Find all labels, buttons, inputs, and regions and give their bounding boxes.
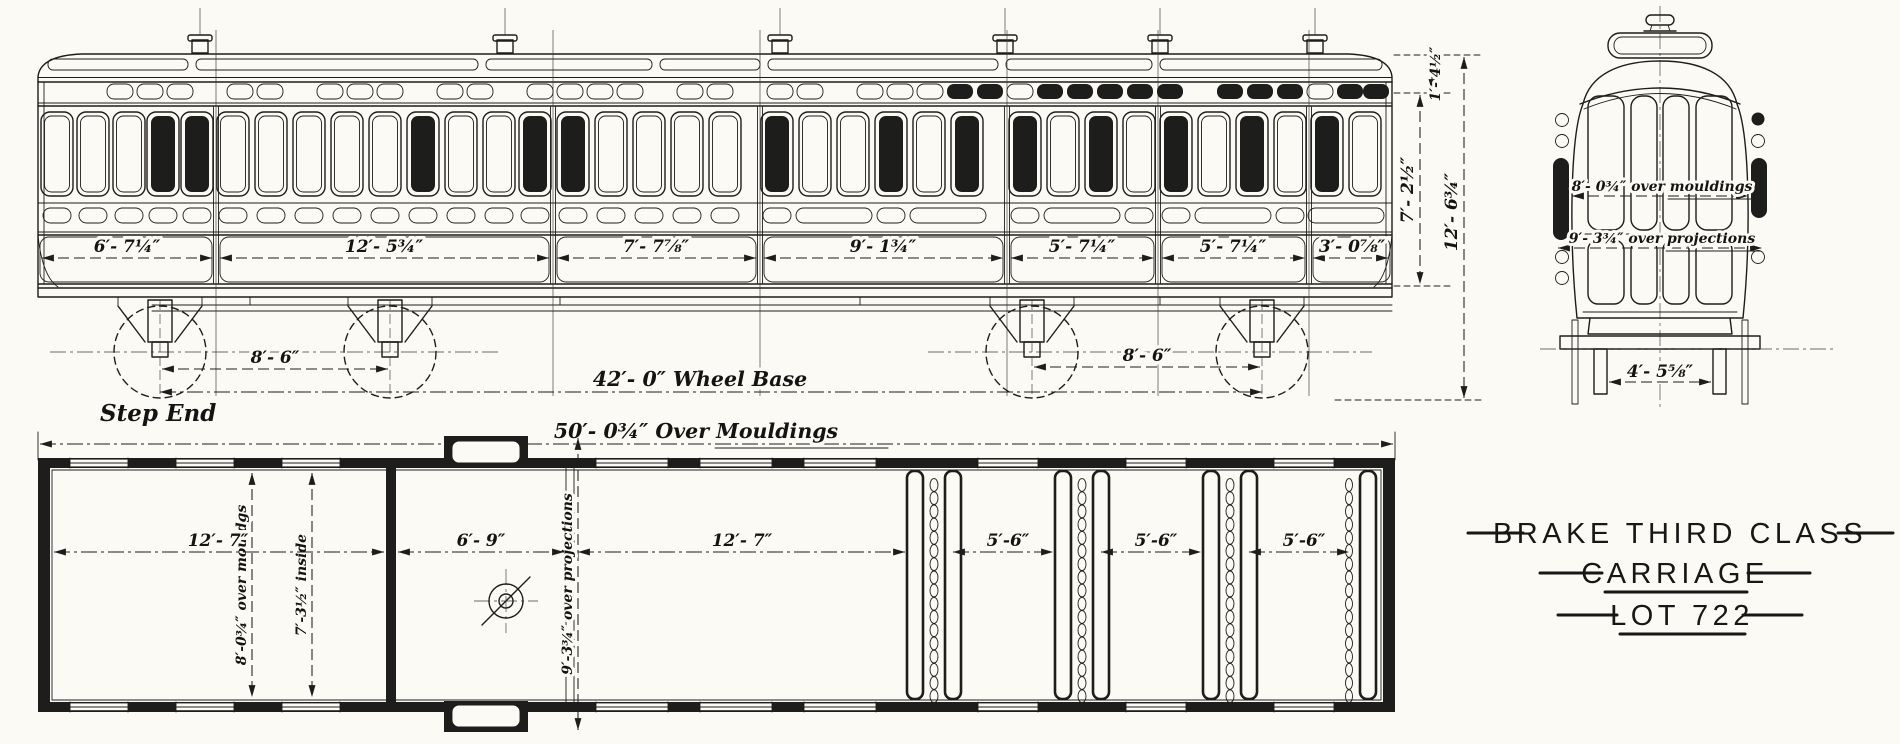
cornice-vent [257, 84, 283, 99]
partition-hatch [930, 545, 938, 558]
waist-oval-vent [295, 208, 323, 223]
partition-hatch [930, 611, 938, 624]
cornice-vent [587, 84, 613, 99]
roof-slat [768, 59, 998, 70]
cornice-vent [557, 84, 583, 99]
partition-hatch [1346, 571, 1353, 584]
cornice-vent [227, 84, 253, 99]
partition-hatch [1078, 597, 1086, 610]
cornice-vent [887, 84, 913, 99]
waist-oval-vent [219, 208, 247, 223]
plan-wall-left [38, 458, 50, 712]
waist-oval-vent [43, 208, 71, 223]
cornice-vent [1007, 84, 1033, 99]
roof-slat [1006, 59, 1152, 70]
side-window [1123, 112, 1155, 196]
end-door-light [1553, 158, 1569, 240]
end-panel-upper [1696, 96, 1732, 230]
window-frame-inner [599, 116, 624, 192]
grab-fitting [1752, 251, 1765, 264]
dim-body-height: 7′- 2½″ [1398, 156, 1418, 223]
seat-back [907, 471, 923, 699]
side-window [369, 112, 401, 196]
partition-hatch [930, 505, 938, 518]
side-elevation-view: 6′- 7¼″ 12′- 5¾″ 7′- 7⅞″ 9′- 1¾″ 5′- 7¼″… [38, 8, 1482, 427]
partition-hatch [1346, 558, 1353, 571]
roof-slat [660, 59, 760, 70]
end-panel-upper [1588, 96, 1624, 230]
waist-oval-vent [1276, 208, 1304, 223]
dim-panel-7: 3′- 0⅞″ [1319, 237, 1386, 257]
partition-hatch [1226, 611, 1234, 624]
window-frame-inner [675, 116, 700, 192]
cornice-vent [317, 84, 343, 99]
waist-long-vent [1308, 208, 1384, 223]
end-elevation-view: 8′- 0¾″ over mouldings 9′- 3¾″ over proj… [1540, 6, 1835, 408]
window-frame-inner [1202, 116, 1227, 192]
partition-hatch [1226, 492, 1234, 505]
side-window [837, 112, 869, 196]
partition-hatch [930, 663, 938, 676]
waist-oval-vent [1011, 208, 1039, 223]
grab-fitting [1752, 135, 1765, 148]
end-panel-lower [1588, 240, 1624, 304]
waist-oval-vent [521, 208, 549, 223]
plan-inner-face [52, 470, 1381, 700]
partition-hatch [1346, 505, 1353, 518]
cornice-vent [1363, 84, 1389, 99]
window-glass-dark [1089, 116, 1113, 192]
roof-ventilator [1307, 40, 1323, 53]
window-glass-dark [1315, 116, 1339, 192]
window-glass-dark [955, 116, 979, 192]
partition-hatch [1346, 545, 1353, 558]
roof-ventilator [497, 40, 513, 53]
partition-hatch [1346, 677, 1353, 690]
partition-hatch [1346, 518, 1353, 531]
dim-bogie-left: 8′- 6″ [250, 348, 300, 368]
partition-hatch [1078, 558, 1086, 571]
window-frame-inner [1353, 116, 1378, 192]
side-window [113, 112, 145, 196]
cornice-vent [677, 84, 703, 99]
partition-hatch [930, 690, 938, 703]
dim-panel-6: 5′- 7¼″ [1200, 237, 1267, 257]
side-window [633, 112, 665, 196]
cornice-vent [947, 84, 973, 99]
dim-panel-5: 5′- 7¼″ [1049, 237, 1116, 257]
partition-hatch [1346, 611, 1353, 624]
end-panel-lower [1696, 240, 1732, 304]
window-glass-dark [1164, 116, 1188, 192]
partition-hatch [1346, 584, 1353, 597]
roof-ventilator [772, 40, 788, 53]
side-window [799, 112, 831, 196]
partition-hatch [930, 571, 938, 584]
cornice-vent [857, 84, 883, 99]
side-window [1274, 112, 1306, 196]
window-frame-inner [1127, 116, 1152, 192]
cornice-vent [617, 84, 643, 99]
dim-rail-gauge: 4′- 5⅝″ [1627, 362, 1694, 382]
side-window [595, 112, 627, 196]
partition-hatch [930, 597, 938, 610]
window-glass-dark [1240, 116, 1264, 192]
window-frame-inner [841, 116, 866, 192]
window-glass-dark [151, 116, 175, 192]
partition-hatch [1078, 505, 1086, 518]
waist-oval-vent [711, 208, 739, 223]
partition-hatch [1346, 650, 1353, 663]
grab-fitting [1752, 113, 1765, 126]
end-panel-upper [1663, 96, 1689, 230]
window-glass-dark [561, 116, 585, 192]
cornice-vent [1157, 84, 1183, 99]
partition-hatch [1078, 518, 1086, 531]
waist-oval-vent [597, 208, 625, 223]
title-line-2: CARRIAGE [1581, 558, 1768, 590]
cornice-vent [1217, 84, 1243, 99]
side-window [913, 112, 945, 196]
grab-fitting [1556, 272, 1569, 285]
side-window [483, 112, 515, 196]
step-end-label: Step End [100, 400, 216, 427]
partition-hatch [1226, 597, 1234, 610]
dim-saloon-length: 12′- 7″ [712, 531, 773, 551]
window-frame-inner [297, 116, 322, 192]
partition-hatch [1346, 624, 1353, 637]
dim-over-mouldings: 8′- 0¾″ over mouldings [1572, 179, 1753, 195]
window-glass-dark [879, 116, 903, 192]
window-frame-inner [917, 116, 942, 192]
title-line-3: LOT 722 [1610, 600, 1754, 632]
partition-hatch [1346, 663, 1353, 676]
cornice-vent [1037, 84, 1063, 99]
partition-hatch [1078, 677, 1086, 690]
seat-back [1093, 471, 1109, 699]
partition-hatch [1226, 650, 1234, 663]
waist-long-vent [1195, 208, 1271, 223]
partition-hatch [1346, 690, 1353, 703]
partition-hatch [1226, 663, 1234, 676]
partition-hatch [930, 531, 938, 544]
waist-oval-vent [485, 208, 513, 223]
window-frame-inner [637, 116, 662, 192]
partition-hatch [1226, 518, 1234, 531]
plan-partition-luggage [386, 468, 396, 702]
partition-hatch [930, 479, 938, 492]
side-window [709, 112, 741, 196]
dim-panel-4: 9′- 1¾″ [850, 237, 917, 257]
leg-right [1713, 349, 1726, 394]
waist-oval-vent [1162, 208, 1190, 223]
waist-long-vent [910, 208, 986, 223]
cornice-vent [137, 84, 163, 99]
window-frame-inner [487, 116, 512, 192]
seat-back [1203, 471, 1219, 699]
side-window [255, 112, 287, 196]
window-frame-inner [713, 116, 738, 192]
cornice-vent [377, 84, 403, 99]
cornice-vent [1337, 84, 1363, 99]
window-frame-inner [81, 116, 106, 192]
cornice-vent [797, 84, 823, 99]
cornice-vent [347, 84, 373, 99]
partition-hatch [1226, 531, 1234, 544]
seat-back [1055, 471, 1071, 699]
end-panel-lower [1631, 240, 1657, 304]
waist-long-vent [1044, 208, 1120, 223]
cornice-vent [917, 84, 943, 99]
end-panel-upper [1631, 96, 1657, 230]
partition-hatch [1078, 637, 1086, 650]
partition-hatch [1346, 637, 1353, 650]
partition-hatch [1078, 571, 1086, 584]
roof-ventilator [997, 40, 1013, 53]
spring-hanger [118, 306, 145, 342]
partition-hatch [1078, 531, 1086, 544]
waist-oval-vent [149, 208, 177, 223]
grab-fitting [1556, 135, 1569, 148]
dim-compartment-2: 5′-6″ [1135, 531, 1178, 551]
partition-hatch [1226, 624, 1234, 637]
partition-hatch [1346, 597, 1353, 610]
side-window [1198, 112, 1230, 196]
waist-oval-vent [409, 208, 437, 223]
dim-total-height: 12′- 6¾″ [1442, 172, 1462, 251]
side-window [293, 112, 325, 196]
cornice-vent [1127, 84, 1153, 99]
side-window [1349, 112, 1381, 196]
cornice-vent [1097, 84, 1123, 99]
partition-hatch [1226, 479, 1234, 492]
seat-back [1360, 471, 1376, 699]
roof-ventilator [192, 40, 208, 53]
window-frame-inner [221, 116, 246, 192]
roof-ventilator [1152, 40, 1168, 53]
waist-oval-vent [763, 208, 791, 223]
roof-slat [48, 59, 188, 70]
partition-hatch [1226, 637, 1234, 650]
title-line-1: BRAKE THIRD CLASS [1493, 518, 1867, 550]
cornice-vent [527, 84, 553, 99]
dim-compartment-3: 5′-6″ [1283, 531, 1326, 551]
cornice-vent [1277, 84, 1303, 99]
drawing-sheet: 6′- 7¼″ 12′- 5¾″ 7′- 7⅞″ 9′- 1¾″ 5′- 7¼″… [0, 0, 1900, 744]
end-panel-lower [1663, 240, 1689, 304]
dim-panel-1: 6′- 7¼″ [94, 237, 161, 257]
guard-door-top [452, 441, 520, 463]
grab-fitting [1556, 251, 1569, 264]
dim-plan-inside-width: 7′-3½″ inside [294, 534, 310, 636]
dim-panel-2: 12′- 5¾″ [345, 237, 424, 257]
partition-hatch [1226, 690, 1234, 703]
partition-hatch [930, 584, 938, 597]
partition-hatch [1226, 558, 1234, 571]
partition-hatch [1078, 545, 1086, 558]
side-window [217, 112, 249, 196]
partition-hatch [1226, 677, 1234, 690]
waist-oval-vent [257, 208, 285, 223]
partition-hatch [1078, 479, 1086, 492]
rail-left [1572, 320, 1578, 404]
cornice-vent [977, 84, 1003, 99]
dim-plan-over-mouldings: 8′-0¾″ over mouldgs [234, 505, 250, 666]
window-frame-inner [117, 116, 142, 192]
partition-hatch [930, 624, 938, 637]
carriage-drawing: 6′- 7¼″ 12′- 5¾″ 7′- 7⅞″ 9′- 1¾″ 5′- 7¼″… [0, 0, 1900, 744]
cornice-vent [467, 84, 493, 99]
waist-oval-vent [115, 208, 143, 223]
roof-vent-stem [1650, 25, 1652, 31]
partition-hatch [1078, 492, 1086, 505]
dim-cornice-height: 1′- 4½″ [1428, 46, 1444, 101]
window-frame-inner [45, 116, 70, 192]
waist-oval-vent [79, 208, 107, 223]
partition-hatch [1078, 584, 1086, 597]
roof-slat [1160, 59, 1382, 70]
partition-hatch [930, 492, 938, 505]
waist-oval-vent [559, 208, 587, 223]
cornice-vent [1307, 84, 1333, 99]
window-frame-inner [1051, 116, 1076, 192]
partition-hatch [1078, 611, 1086, 624]
partition-hatch [1226, 545, 1234, 558]
seat-back [945, 471, 961, 699]
side-window [671, 112, 703, 196]
side-window [445, 112, 477, 196]
waist-oval-vent [1125, 208, 1153, 223]
plan-wall-right [1383, 458, 1395, 712]
partition-hatch [930, 558, 938, 571]
window-glass-dark [185, 116, 209, 192]
seat-back [1241, 471, 1257, 699]
partition-hatch [1346, 479, 1353, 492]
cornice-vent [437, 84, 463, 99]
roof-vent-stem [1668, 25, 1670, 31]
partition-hatch [1078, 650, 1086, 663]
dim-guard-length: 6′- 9″ [457, 531, 506, 551]
partition-hatch [1226, 571, 1234, 584]
window-glass-dark [411, 116, 435, 192]
cornice-vent [707, 84, 733, 99]
dim-overall-length: 50′- 0¾″ Over Mouldings [554, 419, 839, 443]
waist-oval-vent [673, 208, 701, 223]
cornice-vent [767, 84, 793, 99]
partition-hatch [1078, 663, 1086, 676]
waist-oval-vent [877, 208, 905, 223]
dim-plan-over-projections: 9′-3¾″ over projections [560, 493, 576, 675]
dim-over-projections: 9′- 3¾″ over projections [1569, 231, 1756, 247]
side-window [331, 112, 363, 196]
partition-hatch [1226, 584, 1234, 597]
cornice-vent [1067, 84, 1093, 99]
window-frame-inner [1278, 116, 1303, 192]
dim-luggage-length: 12′- 7″ [188, 531, 249, 551]
partition-hatch [930, 518, 938, 531]
cornice-vent [1247, 84, 1273, 99]
waist-oval-vent [447, 208, 475, 223]
side-window [41, 112, 73, 196]
guard-door-bottom [452, 705, 520, 727]
side-window [77, 112, 109, 196]
partition-hatch [1346, 492, 1353, 505]
window-glass-dark [523, 116, 547, 192]
partition-hatch [1346, 531, 1353, 544]
waist-oval-vent [371, 208, 399, 223]
dim-wheelbase: 42′- 0″ Wheel Base [593, 367, 807, 391]
waist-oval-vent [183, 208, 211, 223]
window-glass-dark [1013, 116, 1037, 192]
window-glass-dark [765, 116, 789, 192]
partition-hatch [930, 637, 938, 650]
partition-hatch [930, 677, 938, 690]
cornice-vent [107, 84, 133, 99]
roof-slat [196, 59, 478, 70]
partition-hatch [1226, 505, 1234, 518]
grab-fitting [1556, 114, 1569, 127]
dim-compartment-1: 5′-6″ [987, 531, 1030, 551]
partition-hatch [1078, 624, 1086, 637]
dim-panel-3: 7′- 7⅞″ [623, 237, 690, 257]
waist-long-vent [796, 208, 872, 223]
leg-left [1594, 349, 1607, 394]
end-fitting-dark [1751, 158, 1767, 218]
waist-oval-vent [333, 208, 361, 223]
cornice-vent [167, 84, 193, 99]
rail-right [1742, 320, 1748, 404]
dim-bogie-right: 8′- 6″ [1122, 346, 1172, 366]
partition-hatch [930, 650, 938, 663]
roof-slat [486, 59, 652, 70]
window-frame-inner [335, 116, 360, 192]
window-frame-inner [449, 116, 474, 192]
partition-hatch [1078, 690, 1086, 703]
window-frame-inner [259, 116, 284, 192]
title-block: BRAKE THIRD CLASS CARRIAGE LOT 722 [1468, 518, 1893, 634]
window-frame-inner [373, 116, 398, 192]
window-frame-inner [803, 116, 828, 192]
solebar [38, 288, 1392, 297]
side-window [1047, 112, 1079, 196]
plan-view: 50′- 0¾″ Over Mouldings 8′-0¾″ over moul… [38, 419, 1395, 732]
waist-oval-vent [635, 208, 663, 223]
